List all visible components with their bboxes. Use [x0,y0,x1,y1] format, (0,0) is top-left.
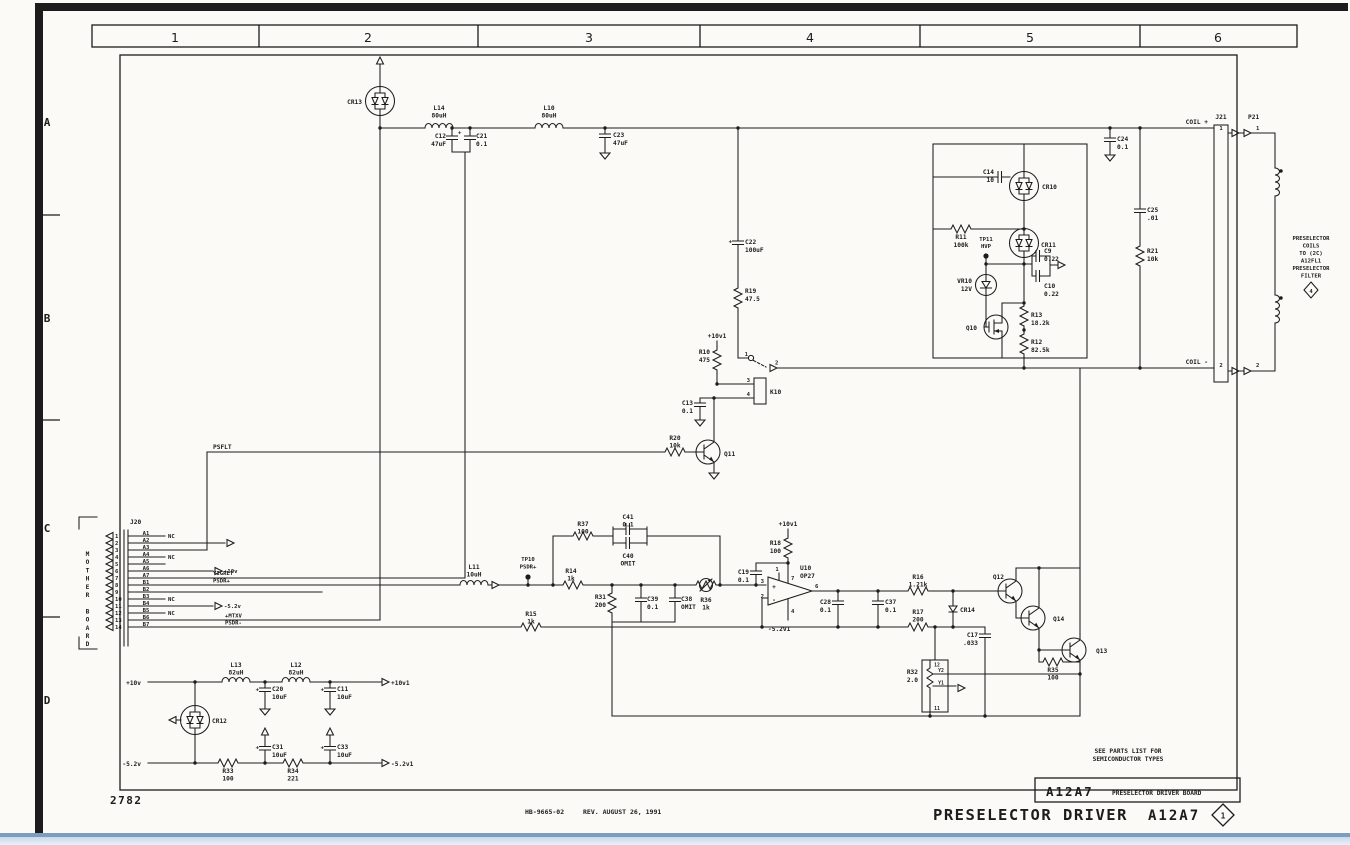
zone-col-3: 3 [585,30,593,45]
p10v1-net-label: +10v1 [708,333,727,340]
j20-pin-number: 5 [115,562,118,568]
j20-pin-number: 10 [115,597,122,603]
c25-value: .01 [1147,215,1158,222]
q14-label: Q14 [1053,616,1064,623]
r20-value: 10k [669,443,680,450]
title-block-assembly: A12A7 [1046,784,1094,799]
r36-value: 1k [702,605,710,612]
j20-pin-number: 11 [115,604,122,610]
j20-pin-signal: A2 [143,538,150,544]
r37-ref: R37 [577,521,588,528]
p21-pin2: 2 [1256,363,1259,369]
zone-row-c: C [44,522,51,535]
r13-value: 18.2k [1031,320,1050,327]
c9-value: 0.22 [1044,256,1059,263]
r15-value: 1k [527,619,535,626]
u10-value: OP27 [800,573,815,580]
r12-value: 82.5k [1031,347,1050,354]
r11-value: 100k [954,242,969,249]
r32-tap-y1: Y1 [938,681,944,687]
schematic-canvas: 1 2 3 4 5 6 A B C D [0,0,1350,845]
r34-value: 221 [287,776,298,783]
zone-col-4: 4 [806,30,814,45]
c21-value: 0.1 [476,141,487,148]
m52v1-out-label: -5.2v1 [391,761,414,768]
u10-pin7: 7 [791,576,794,582]
c19-ref: C19 [738,569,749,576]
j20-pin-number: 14 [115,625,122,631]
coil-note-line6: FILTER [1301,274,1322,280]
r10-ref: R10 [699,349,710,356]
l14-value: 80uH [432,113,447,120]
c17-value: .033 [963,640,978,647]
l10-ref: L10 [543,105,554,112]
sheet-number: 1 [1221,812,1226,821]
c28-ref: C28 [820,599,831,606]
k10-label: K10 [770,389,781,396]
p21-label: P21 [1248,114,1259,121]
c10-value: 0.22 [1044,291,1059,298]
zone-col-1: 1 [171,30,179,45]
c39-value: 0.1 [647,604,658,611]
coil-note-line3: TO (2C) [1299,251,1323,257]
psdr-minus-net-label: PSDR- [225,621,242,627]
r10-value: 475 [699,357,710,364]
l11-value: 10uH [467,572,482,579]
document-number: HB-9665-02 [525,808,564,816]
r16-value: 1.21k [909,582,928,589]
c19-value: 0.1 [738,577,749,584]
j20-pin-number: 3 [115,548,118,554]
c24-ref: C24 [1117,136,1128,143]
c40-value: OMIT [621,561,636,568]
c41-ref: C41 [622,514,633,521]
r31-value: 200 [595,602,606,609]
j20-pin-number: 7 [115,576,118,582]
cr10-label: CR10 [1042,184,1057,191]
u10-minus-input: - [772,597,776,604]
q13-label: Q13 [1096,648,1107,655]
yigret-net-label: YIGRET [213,571,234,577]
bottom-bar-edge [0,833,1350,837]
c40-ref: C40 [622,553,633,560]
j20-pin-signal: A6 [143,566,150,572]
zone-row-b: B [44,312,51,325]
zone-col-6: 6 [1214,30,1222,45]
r17-value: 200 [912,617,923,624]
r19-ref: R19 [745,288,756,295]
zone-row-d: D [44,694,51,707]
vr10-ref: VR10 [957,278,972,285]
r32-value: 2.0 [907,677,918,684]
j21-pin2: 2 [1219,363,1222,369]
tp10-testpoint [525,574,530,579]
l12-ref: L12 [290,662,301,669]
tp11-ref: TP11 [979,237,993,243]
r35-value: 100 [1047,675,1058,682]
q11-label: Q11 [724,451,735,458]
r16-ref: R16 [912,574,923,581]
r37-value: 100 [577,529,588,536]
c31-value: 10uF [272,752,287,759]
j20-pin-number: 2 [115,541,118,547]
r15-ref: R15 [525,611,536,618]
mtxv-net-label: +MTXV [225,613,242,619]
j20-pin-signal: B1 [143,580,150,586]
r32-pin-top: 12 [934,663,940,669]
l14-ref: L14 [433,105,444,112]
k10-pin3: 3 [747,378,750,384]
j20-pin-tag: NC [168,534,175,540]
c39-ref: C39 [647,596,658,603]
j20-pin-signal: B6 [143,615,150,621]
tp11-testpoint [983,253,988,258]
c38-ref: C38 [681,596,692,603]
coil-note-line2: COILS [1303,244,1320,250]
schematic-page: 1 2 3 4 5 6 A B C D [0,0,1350,845]
j20-pin-number: 12 [115,611,122,617]
p10v1-out-label: +10v1 [391,680,410,687]
j20-pin-signal: B3 [143,594,150,600]
j20-pin-number: 13 [115,618,122,624]
j20-label: J20 [130,519,141,526]
c22-ref: C22 [745,239,756,246]
c13-ref: C13 [682,400,693,407]
c23-ref: C23 [613,132,624,139]
cr13-label: CR13 [347,99,362,106]
tp10-name: PSDR+ [520,565,537,571]
r33-value: 100 [222,776,233,783]
j20-pin-signal: B2 [143,587,150,593]
c33-ref: C33 [337,744,348,751]
r32-tap-y2: Y2 [938,668,944,674]
bottom-bar [0,837,1350,845]
j20-pin-tag: -5.2v [224,604,241,610]
r36-ref: R36 [700,597,711,604]
u10-ref: U10 [800,565,811,572]
j21-label: J21 [1215,114,1226,121]
cr14-label: CR14 [960,607,975,614]
l11-ref: L11 [468,564,479,571]
l13-value: 82uH [229,670,244,677]
p10v1-net-label: +10v1 [779,521,798,528]
coil-note-line5: PRESELECTOR [1292,266,1330,272]
j20-pin-signal: B5 [143,608,150,614]
coil-plus-net-label: COIL + [1186,119,1209,126]
c17-ref: C17 [967,632,978,639]
tp11-name: HVP [981,244,992,250]
r34-ref: R34 [287,768,298,775]
c13-value: 0.1 [682,408,693,415]
j20-pin-tag: NC [168,597,175,603]
sheet-assembly: A12A7 [1148,808,1200,824]
c20-value: 10uF [272,694,287,701]
j20-pin-signal: A4 [143,552,150,558]
u10-pin2: 2 [761,594,764,600]
c22-value: 100uF [745,247,764,254]
sheet-title: PRESELECTOR DRIVER [933,806,1128,824]
c14-value: 10 [987,177,995,184]
c25-ref: C25 [1147,207,1158,214]
r18-value: 100 [770,548,781,555]
c24-value: 0.1 [1117,144,1128,151]
psflt-net-label: PSFLT [213,444,232,451]
r13-ref: R13 [1031,312,1042,319]
c10-ref: C10 [1044,283,1055,290]
cr12-label: CR12 [212,718,227,725]
c41-value: 0.1 [622,522,633,529]
r11-ref: R11 [955,234,966,241]
c9-ref: C9 [1044,248,1052,255]
j20-pin-signal: A5 [143,559,150,565]
q12-label: Q12 [993,574,1004,581]
k10-pin2: 2 [775,361,778,367]
c11-value: 10uF [337,694,352,701]
c37-ref: C37 [885,599,896,606]
zone-col-5: 5 [1026,30,1034,45]
parts-note-line1: SEE PARTS LIST FOR [1094,748,1161,755]
tp10-ref: TP10 [521,557,535,563]
j20-pin-tag: NC [168,611,175,617]
psdr-plus-net-label: PSDR+ [213,579,230,585]
r12-ref: R12 [1031,339,1042,346]
l10-value: 80uH [542,113,557,120]
l12-value: 82uH [289,670,304,677]
c31-ref: C31 [272,744,283,751]
r20-ref: R20 [669,435,680,442]
u10-plus-input: + [772,584,776,591]
c21-ref: C21 [476,133,487,140]
r35-ref: R35 [1047,667,1058,674]
j20-pin-signal: A7 [143,573,150,579]
coil-note-line1: PRESELECTOR [1292,236,1330,242]
u10-pin3: 3 [761,579,764,585]
j20-pin-signal: A1 [143,531,150,537]
r21-ref: R21 [1147,248,1158,255]
zone-row-a: A [44,116,51,129]
r31-ref: R31 [595,594,606,601]
c14-ref: C14 [983,169,994,176]
coil-minus-net-label: COIL - [1186,359,1208,366]
r32-pin-bottom: 11 [934,706,940,712]
revision-date: REV. AUGUST 26, 1991 [583,808,661,816]
r21-value: 10k [1147,256,1158,263]
c12-value: 47uF [431,141,446,148]
mother-board-label: MOTHER BOARD [84,551,91,649]
c37-value: 0.1 [885,607,896,614]
c38-value: OMIT [681,604,696,611]
r14-ref: R14 [565,568,576,575]
j20-pin-tag: NC [168,555,175,561]
c20-ref: C20 [272,686,283,693]
r19-value: 47.5 [745,296,760,303]
j20-pin-signal: B7 [143,622,150,628]
m52v1-net-label: -5.2v1 [768,626,791,633]
title-block-board-name: PRESELECTOR DRIVER BOARD [1112,790,1202,797]
vr10-value: 12V [961,286,972,293]
parts-note-line2: SEMICONDUCTOR TYPES [1093,756,1164,763]
c33-value: 10uF [337,752,352,759]
stock-number: 2782 [110,794,143,807]
p10v-net-label: +10v [126,680,141,687]
r17-ref: R17 [912,609,923,616]
j20-pin-signal: A3 [143,545,150,551]
m52v-net-label: -5.2v [122,761,141,768]
c12-ref: C12 [435,133,446,140]
zone-col-2: 2 [364,30,372,45]
c28-value: 0.1 [820,607,831,614]
j20-pin-signal: B4 [143,601,150,607]
coil-note-line4: A12FL1 [1301,259,1322,265]
r33-ref: R33 [222,768,233,775]
r32-ref: R32 [907,669,918,676]
c11-ref: C11 [337,686,348,693]
r18-ref: R18 [770,540,781,547]
q10-label: Q10 [966,325,977,332]
l13-ref: L13 [230,662,241,669]
c23-value: 47uF [613,140,628,147]
r14-value: 1k [567,576,575,583]
